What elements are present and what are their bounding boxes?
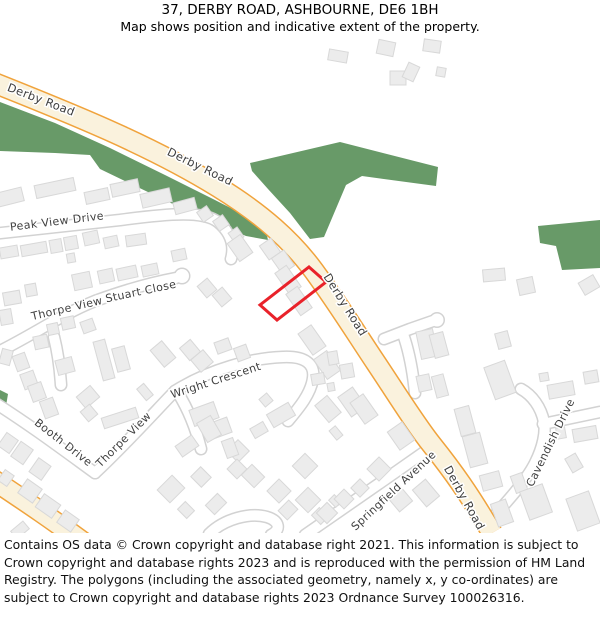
building bbox=[539, 372, 549, 381]
building bbox=[178, 502, 195, 519]
map-canvas: Derby RoadDerby RoadDerby RoadDerby Road… bbox=[0, 33, 600, 533]
building bbox=[328, 49, 349, 63]
building bbox=[0, 309, 13, 326]
building bbox=[84, 188, 110, 205]
building bbox=[0, 348, 13, 365]
building bbox=[72, 271, 93, 290]
building bbox=[46, 322, 59, 335]
building bbox=[484, 360, 516, 399]
building bbox=[116, 265, 138, 281]
building bbox=[191, 467, 212, 488]
map: Derby RoadDerby RoadDerby RoadDerby Road… bbox=[0, 33, 600, 533]
building bbox=[82, 230, 99, 246]
building bbox=[150, 341, 176, 367]
building bbox=[141, 263, 159, 277]
building bbox=[423, 39, 442, 53]
building bbox=[412, 479, 439, 507]
building bbox=[112, 346, 131, 373]
building bbox=[565, 453, 583, 473]
culdesac bbox=[431, 314, 444, 327]
building bbox=[137, 383, 154, 400]
building bbox=[157, 475, 185, 503]
building bbox=[295, 487, 320, 512]
building bbox=[267, 479, 291, 503]
building bbox=[278, 500, 298, 520]
building bbox=[479, 471, 502, 492]
building bbox=[578, 275, 600, 296]
building bbox=[339, 363, 354, 379]
building bbox=[214, 338, 232, 354]
building bbox=[431, 374, 448, 398]
building bbox=[416, 374, 432, 392]
building bbox=[462, 432, 488, 468]
building bbox=[39, 397, 58, 419]
building bbox=[80, 318, 96, 334]
building bbox=[11, 521, 30, 533]
building bbox=[221, 437, 238, 458]
building bbox=[0, 245, 19, 259]
building bbox=[205, 493, 226, 514]
building bbox=[125, 233, 146, 247]
building bbox=[292, 453, 317, 478]
building bbox=[547, 381, 575, 399]
building bbox=[517, 277, 536, 296]
building bbox=[25, 283, 38, 297]
building bbox=[566, 491, 600, 531]
building bbox=[376, 39, 396, 56]
copyright-footer: Contains OS data © Crown copyright and d… bbox=[4, 536, 598, 606]
building bbox=[49, 239, 63, 254]
building bbox=[327, 382, 335, 391]
building bbox=[250, 421, 268, 438]
building bbox=[483, 268, 506, 282]
building bbox=[12, 352, 30, 371]
building bbox=[97, 268, 114, 284]
building bbox=[3, 290, 22, 306]
page-title: 37, DERBY ROAD, ASHBOURNE, DE6 1BH bbox=[0, 2, 600, 18]
building bbox=[110, 179, 140, 198]
building bbox=[80, 404, 98, 422]
building bbox=[329, 426, 343, 440]
building bbox=[29, 458, 51, 481]
building bbox=[0, 187, 24, 207]
building bbox=[63, 235, 78, 250]
building bbox=[140, 188, 172, 208]
road-label: Cavendish Drive bbox=[524, 397, 578, 489]
building bbox=[315, 395, 341, 422]
building bbox=[436, 67, 446, 77]
building bbox=[34, 177, 76, 198]
culdesac bbox=[175, 269, 189, 283]
building bbox=[93, 339, 115, 381]
building bbox=[171, 248, 187, 262]
building bbox=[259, 393, 273, 407]
building bbox=[103, 235, 119, 249]
building bbox=[33, 334, 49, 350]
page-subtitle: Map shows position and indicative extent… bbox=[0, 19, 600, 34]
building bbox=[327, 351, 339, 366]
building bbox=[66, 253, 75, 263]
building bbox=[454, 406, 476, 437]
building bbox=[583, 370, 599, 384]
building bbox=[298, 325, 326, 355]
building bbox=[60, 316, 75, 330]
building bbox=[572, 426, 598, 443]
building bbox=[20, 241, 48, 256]
page-header: 37, DERBY ROAD, ASHBOURNE, DE6 1BH Map s… bbox=[0, 0, 600, 34]
building bbox=[495, 331, 512, 350]
building bbox=[311, 372, 326, 385]
green-area bbox=[538, 220, 600, 270]
